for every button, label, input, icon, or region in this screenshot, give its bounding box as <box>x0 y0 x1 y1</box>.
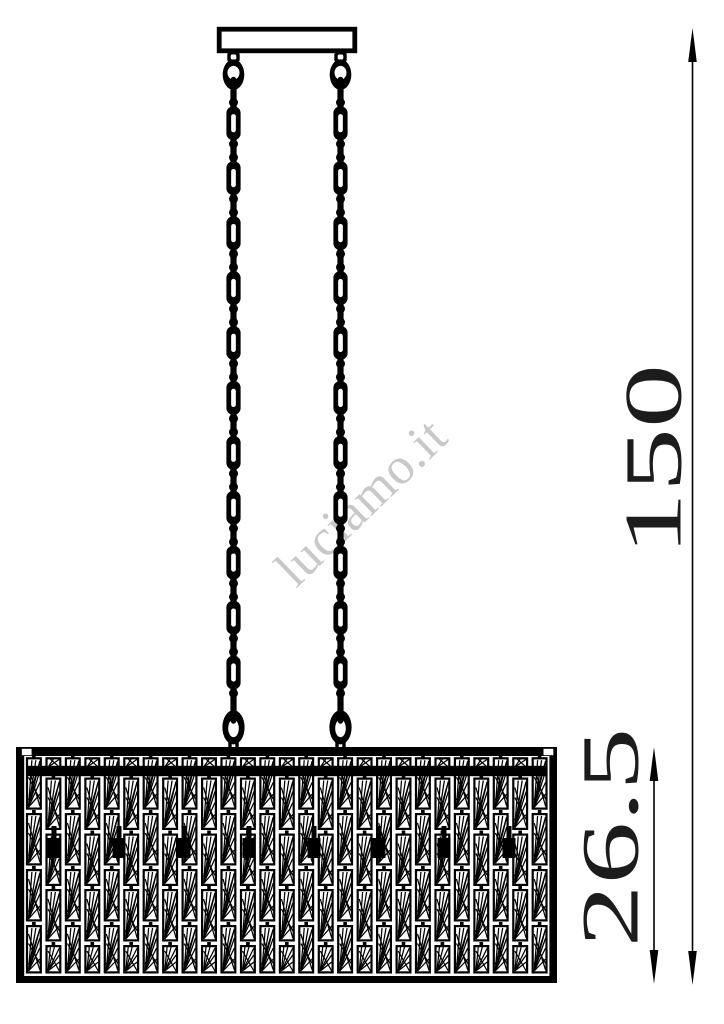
svg-text:26.5: 26.5 <box>565 728 656 948</box>
svg-text:150: 150 <box>608 364 699 556</box>
